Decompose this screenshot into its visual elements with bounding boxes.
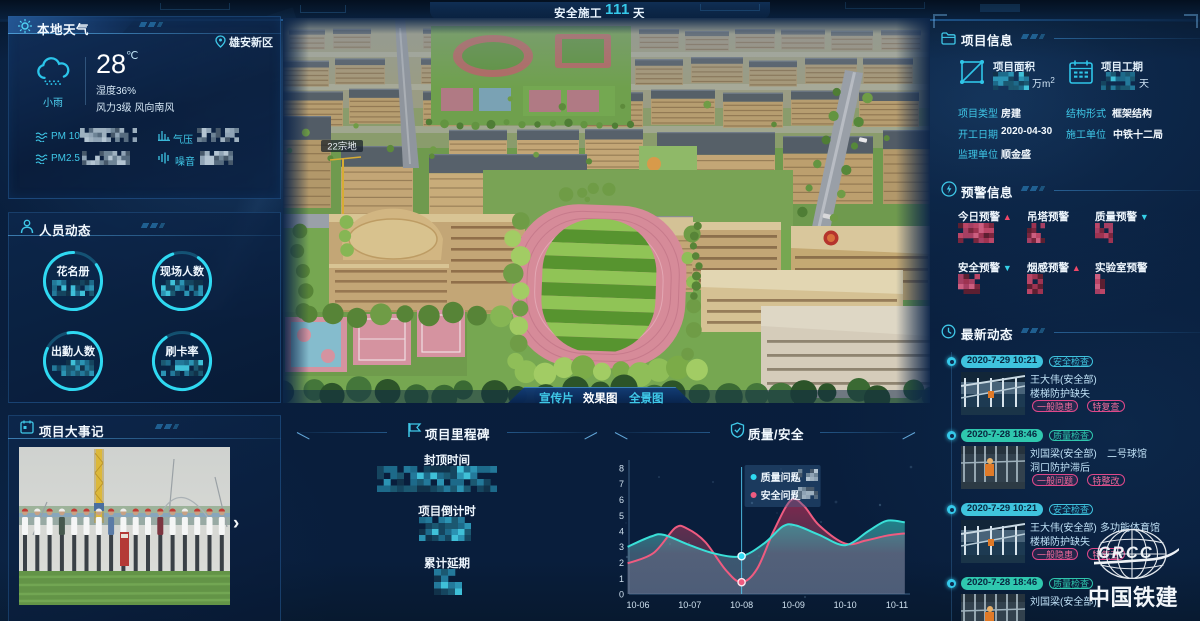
svg-text:8: 8: [619, 464, 624, 474]
svg-text:10-11: 10-11: [886, 600, 908, 610]
svg-text:10-07: 10-07: [678, 600, 701, 610]
svg-text:CRCC: CRCC: [1098, 544, 1154, 562]
svg-text:质量问题: 质量问题: [761, 471, 802, 484]
svg-text:0: 0: [619, 590, 624, 600]
svg-text:3: 3: [619, 542, 624, 552]
svg-text:2: 2: [619, 558, 624, 568]
svg-text:安全问题: 安全问题: [761, 489, 802, 502]
svg-text:22宗地: 22宗地: [327, 141, 357, 153]
svg-text:10-08: 10-08: [730, 600, 753, 610]
svg-text:10-10: 10-10: [834, 600, 857, 610]
svg-text:7: 7: [619, 479, 624, 489]
svg-text:6: 6: [619, 495, 624, 505]
svg-text:10-06: 10-06: [626, 600, 649, 610]
svg-text:1: 1: [619, 574, 624, 584]
svg-text:10-09: 10-09: [782, 600, 805, 610]
svg-text:5: 5: [619, 511, 624, 521]
svg-text:4: 4: [619, 527, 624, 537]
